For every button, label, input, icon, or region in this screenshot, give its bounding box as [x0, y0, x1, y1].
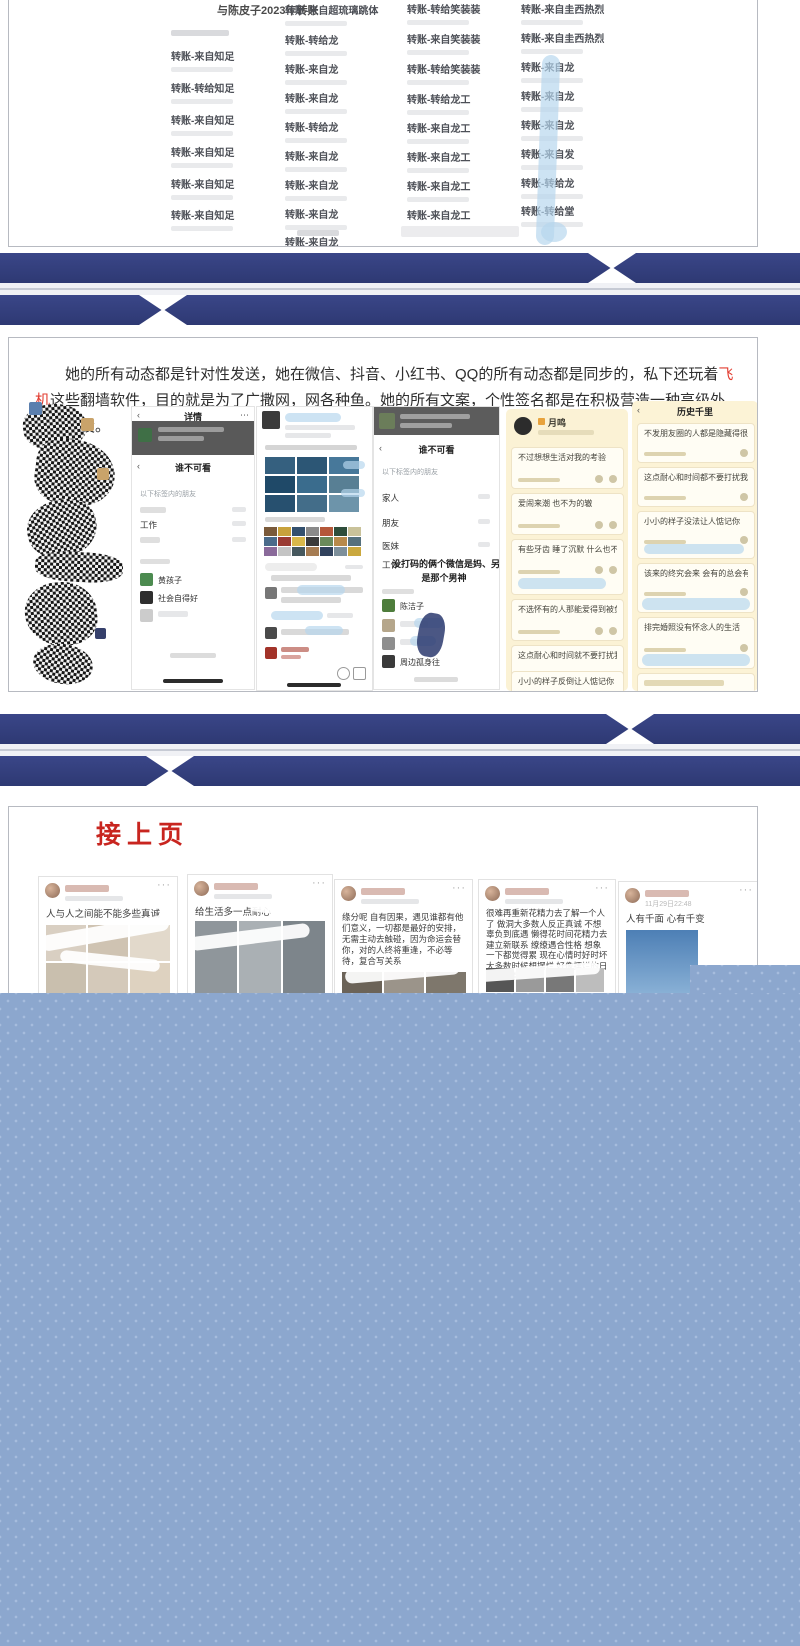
contact-avatar [382, 637, 395, 650]
transfer-time-blur [285, 21, 347, 26]
transfer-record: 转账-来自龙 [285, 210, 415, 230]
photo-cell [278, 527, 291, 536]
transfer-record: 转账-来自知足 [171, 148, 301, 168]
transfer-record: 转账-来自龙 [285, 238, 415, 247]
post-date-blur [361, 899, 419, 904]
badge-icon [538, 418, 545, 425]
blur-bar [478, 519, 490, 524]
photo-cell [348, 537, 361, 546]
photo-cell [297, 495, 327, 512]
wechat-privacy-screenshot: ‹ 谁不可看 以下标签内的朋友 家人 朋友 医妹 工作 没打码的俩个微信是妈、另… [373, 406, 500, 690]
blur-bar [327, 613, 353, 618]
censor-scribble [644, 544, 744, 554]
transfer-label: 转账-来自知足 [171, 211, 301, 222]
photo-cell [334, 547, 347, 556]
post-text: 不发朋友圈的人都是隐藏得很深的 [644, 429, 748, 439]
profile-avatar [514, 417, 532, 435]
blur-bar [644, 680, 724, 686]
contact-name: 社会自得好 [158, 593, 198, 604]
wechat-detail-screenshot: ‹ 详情 ⋯ ‹ 谁不可看 以下标签内的朋友 工作 黄孩子 社会自得好 [131, 406, 255, 690]
poster-avatar [625, 888, 640, 903]
blur-bar [297, 230, 339, 236]
home-indicator [163, 679, 223, 683]
censor-pattern-blob [30, 640, 96, 689]
tag-row-label: 家人 [382, 492, 399, 504]
post-text: 这点耐心和时间都不要打扰我了 [644, 473, 748, 483]
transfer-record: 转账-转给笑装装 [407, 65, 537, 85]
poster-name-blur [645, 890, 689, 897]
blur-bar [345, 565, 363, 569]
poster-name-blur [361, 888, 405, 895]
transfer-label: 转账-来自龙 [285, 65, 415, 76]
transfer-label: 转账-来自龙工 [407, 124, 537, 135]
post-date-blur [505, 899, 563, 904]
qq-post: 排完婚照没有怀念人的生活 [637, 617, 755, 669]
photo-cell [334, 537, 347, 546]
transfer-record: 转账-来自知足 [171, 52, 301, 72]
transfer-time-blur [171, 226, 233, 231]
blur-bar [414, 677, 458, 682]
post-time-blur [518, 524, 560, 528]
transfer-label: 转账-来自圭西热烈 [521, 34, 651, 45]
transfer-time-blur [285, 109, 347, 114]
poster-avatar [485, 886, 500, 901]
evidence-panel: 她的所有动态都是针对性发送，她在微信、抖音、小红书、QQ的所有动态都是同步的，私… [8, 337, 758, 692]
qq-post: 该来的终究会来 会有的总会有的 [637, 563, 755, 613]
post-banner [374, 407, 499, 435]
privacy-title: 谁不可看 [132, 461, 254, 474]
contact-avatar [382, 655, 395, 668]
transfer-label: 转账-转给笑装装 [407, 5, 537, 16]
censor-pattern-blob [34, 550, 123, 585]
contact-avatar [382, 599, 395, 612]
photo-cell [278, 537, 291, 546]
blur-bar [281, 655, 301, 659]
post-time-blur [644, 592, 686, 596]
qq-profile-screenshot: 月鸣 不过想想生活对我的考验 爱闹来潮 也不为的辙 有些牙齿 睡了沉默 什么也不… [506, 409, 628, 691]
chat-bubble [265, 563, 317, 571]
post-text: 不过想想生活对我的考验 [518, 453, 617, 463]
divider-notch [588, 267, 636, 283]
continue-from-previous-label: 接上页 [96, 815, 189, 851]
transfer-time-blur [285, 167, 347, 172]
censor-scribble [285, 413, 341, 422]
transfer-label: 转账-来自龙 [285, 210, 415, 221]
home-indicator [287, 683, 341, 687]
photo-cell [265, 457, 295, 474]
qq-post: 小小的样子反倒让人惦记你 [511, 671, 624, 691]
contact-name: 陈洁子 [400, 601, 424, 612]
qq-post: 不过想想生活对我的考验 [511, 447, 624, 489]
avatar-thumbnail [81, 418, 94, 431]
post-time-blur [518, 630, 560, 634]
transfer-time-blur [407, 20, 469, 25]
transfer-label: 转账-转给龙 [285, 123, 415, 134]
photo-cell [292, 537, 305, 546]
profile-avatar [262, 411, 280, 429]
blur-bar [140, 537, 160, 543]
censor-scribble [518, 578, 606, 589]
transfer-time-blur [285, 138, 347, 143]
transfer-time-blur [171, 67, 233, 72]
censor-scribble [305, 626, 343, 635]
censor-scribble [642, 654, 750, 666]
blur-bar [232, 507, 246, 512]
screenshot-page: 与陈皮子2023年转账 转账-来自知足 转账-转给知足 转账-来自知足 转账-来… [0, 0, 800, 1646]
transfer-label: 转账-来自笑装装 [407, 35, 537, 46]
contact-avatar [140, 591, 153, 604]
post-banner [132, 421, 254, 455]
post-text: 不选怀有的人那能爱得到被负 [518, 605, 617, 615]
transfer-record: 转账-转给龙 [285, 36, 415, 56]
post-text: 缘分呢 自有因果，遇见谁都有他们意义，一切都是最好的安排，无需主动去触碰，因为命… [342, 912, 465, 967]
tag-row-label: 医妹 [382, 540, 399, 552]
divider-line [0, 749, 800, 751]
transfer-record: 转账-来自龙 [285, 94, 415, 114]
transfer-time-blur [285, 196, 347, 201]
transfer-label: 转账-来自龙 [285, 94, 415, 105]
transfer-label: 转账-来自龙 [521, 63, 651, 74]
profile-name: 月鸣 [548, 416, 566, 429]
tag-row-label: 朋友 [382, 517, 399, 529]
transfer-record: 转账-来自圭西热烈 [521, 5, 651, 25]
photo-cell [334, 527, 347, 536]
divider-bar [0, 756, 800, 786]
post-date: 11月29日22:48 [645, 899, 692, 909]
section-label: 以下标签内的朋友 [140, 489, 196, 499]
blur-bar [281, 647, 309, 652]
transfer-time-blur [171, 163, 233, 168]
poster-name-blur [214, 883, 258, 890]
annotation-text: 是那个男神 [392, 571, 496, 584]
like-icon [740, 449, 748, 457]
blur-bar [271, 575, 351, 581]
censor-scribble [343, 461, 365, 469]
transfer-record: 转账-来自龙 [285, 65, 415, 85]
poster-avatar [45, 883, 60, 898]
photo-cell [348, 527, 361, 536]
photo-cell [320, 547, 333, 556]
more-menu-icon: ··· [157, 879, 171, 891]
transfer-label: 转账-转给龙工 [407, 95, 537, 106]
transfer-record: 转账-来自知足 [171, 180, 301, 200]
qq-post: 不发朋友圈的人都是隐藏得很深的 [637, 423, 755, 463]
qq-history-screenshot: ‹ 历史千里 不发朋友圈的人都是隐藏得很深的 这点耐心和时间都不要打扰我了 小小… [632, 401, 758, 691]
chat-avatar [265, 627, 277, 639]
poster-avatar [341, 886, 356, 901]
paragraph-text: 她的所有动态都是针对性发送，她在微信、抖音、小红书、QQ的所有动态都是同步的，私… [65, 366, 718, 383]
like-icon [595, 521, 603, 529]
transfer-record: 转账-来自龙工 [407, 153, 537, 173]
transfer-label: 转账-来自圭西热烈 [521, 5, 651, 16]
transfer-time-blur [171, 131, 233, 136]
photo-cell [297, 476, 327, 493]
blur-bar [265, 445, 357, 450]
transfer-time-blur [285, 80, 347, 85]
photo-cell [278, 547, 291, 556]
more-menu-icon: ··· [739, 884, 753, 896]
transfer-time-blur [285, 51, 347, 56]
photo-cell [306, 527, 319, 536]
post-date-blur [65, 896, 123, 901]
blue-overlay-block [0, 993, 800, 1646]
censor-scribble [297, 585, 345, 595]
photo-cell [265, 495, 295, 512]
message-icon [353, 667, 366, 680]
blur-bar [158, 436, 204, 441]
transfer-time-blur [521, 49, 583, 54]
blur-bar [285, 425, 355, 430]
transfer-time-blur [407, 80, 469, 85]
like-icon [595, 475, 603, 483]
blur-bar [158, 427, 224, 432]
photo-cell [297, 457, 327, 474]
more-menu-icon: ··· [312, 877, 326, 889]
post-text: 这点耐心和时间就不要打扰我了 [518, 651, 617, 661]
post-text: 排完婚照没有怀念人的生活 [644, 623, 748, 633]
transfer-time-blur [407, 110, 469, 115]
blur-bar [265, 517, 325, 522]
divider-notch [139, 309, 187, 325]
avatar-thumbnail [29, 402, 42, 415]
transfer-label: 转账-来自龙工 [407, 182, 537, 193]
post-time-blur [644, 496, 686, 500]
photo-cell [264, 537, 277, 546]
post-time-blur [644, 452, 686, 456]
blur-bar [170, 653, 216, 658]
transfer-label: 转账-来自知足 [171, 116, 301, 127]
contact-avatar [140, 573, 153, 586]
transfer-record: 转账-转给笑装装 [407, 5, 537, 25]
transfer-label: 转账-来自知足 [171, 148, 301, 159]
transfer-label: 转账-转给笑装装 [407, 65, 537, 76]
comment-icon [609, 475, 617, 483]
screen-title: 历史千里 [632, 405, 758, 418]
transfer-record: 转账-转给龙工 [407, 95, 537, 115]
blur-bar [285, 433, 331, 438]
transfer-record: 转账-来自超琉璃跳体 [285, 6, 415, 26]
transfer-time-blur [407, 168, 469, 173]
photo-cell [292, 527, 305, 536]
chat-avatar [265, 647, 277, 659]
transfer-label: 转账-来自超琉璃跳体 [285, 6, 415, 17]
comment-icon [609, 521, 617, 529]
transfer-time-blur [407, 139, 469, 144]
transfer-time-blur [407, 197, 469, 202]
blur-bar [281, 597, 341, 603]
contact-avatar [140, 609, 153, 622]
blur-bar [478, 542, 490, 547]
transfer-label: 转账-来自知足 [171, 180, 301, 191]
qq-post [637, 673, 755, 691]
like-icon [595, 566, 603, 574]
divider-notch [606, 728, 654, 744]
tag-row-label: 工作 [140, 519, 157, 531]
qq-post: 这点耐心和时间都不要打扰我了 [637, 467, 755, 507]
transfer-label: 转账-来自龙 [285, 181, 415, 192]
transfer-record: 转账-来自龙工 [407, 182, 537, 202]
blur-bar [478, 494, 490, 499]
more-icon: ⋯ [240, 410, 249, 421]
transfer-record: 转账-来自笑装装 [407, 35, 537, 55]
divider-line [0, 288, 800, 290]
blur-bar [401, 226, 519, 237]
avatar-thumbnail [97, 468, 109, 480]
post-time-blur [644, 648, 686, 652]
qq-post: 小小的样子没法让人惦记你 [637, 511, 755, 559]
add-icon [337, 667, 350, 680]
poster-name-blur [505, 888, 549, 895]
transfer-record: 转账-转给知足 [171, 84, 301, 104]
section-label: 以下标签内的朋友 [382, 467, 438, 477]
photo-cell [320, 527, 333, 536]
poster-name-blur [65, 885, 109, 892]
photo-cell [306, 537, 319, 546]
post-date-blur [214, 894, 272, 899]
qq-post: 不选怀有的人那能爱得到被负 [511, 599, 624, 641]
photo-cell [265, 476, 295, 493]
transfer-records-panel: 与陈皮子2023年转账 转账-来自知足 转账-转给知足 转账-来自知足 转账-来… [8, 0, 758, 247]
like-icon [740, 588, 748, 596]
blur-bar [140, 507, 166, 513]
transfer-record: 转账-来自圭西热烈 [521, 34, 651, 54]
banner-thumbnail [138, 428, 152, 442]
photo-cell [306, 547, 319, 556]
divider-notch [146, 770, 194, 786]
annotation-text: 没打码的俩个微信是妈、另外俩个 [392, 557, 496, 570]
more-menu-icon: ··· [595, 882, 609, 894]
post-time-blur [518, 570, 560, 574]
photo-cell [292, 547, 305, 556]
censor-scribble [341, 489, 365, 497]
photo-cell [348, 547, 361, 556]
transfer-record: 转账-来自龙工 [407, 124, 537, 144]
post-text: 人有千面 心有千变 [626, 914, 752, 926]
blur-bar [232, 521, 246, 526]
wechat-moments-screenshot [256, 406, 373, 691]
more-menu-icon: ··· [452, 882, 466, 894]
divider-bar [0, 253, 800, 283]
transfer-label: 转账-来自龙工 [407, 211, 537, 222]
post-text: 有些牙齿 睡了沉默 什么也不想说 [518, 545, 617, 555]
photo-cell [264, 547, 277, 556]
transfer-time-blur [521, 20, 583, 25]
like-icon [740, 493, 748, 501]
post-text: 该来的终究会来 会有的总会有的 [644, 569, 748, 579]
post-text: 小小的样子没法让人惦记你 [644, 517, 748, 527]
poster-avatar [194, 881, 209, 896]
blur-bar [400, 423, 452, 428]
divider-bar [0, 714, 800, 744]
banner-thumbnail [379, 413, 395, 429]
transfer-record: 转账-来自知足 [171, 211, 301, 231]
avatar-thumbnail [95, 628, 106, 639]
transfer-label: 转账-来自知足 [171, 52, 301, 63]
comment-icon [609, 566, 617, 574]
transfer-record: 转账-转给龙 [285, 123, 415, 143]
post-text: 爱闹来潮 也不为的辙 [518, 499, 617, 509]
transfer-label: 转账-转给知足 [171, 84, 301, 95]
transfer-time-blur [171, 195, 233, 200]
blur-bar [171, 30, 229, 36]
post-text: 小小的样子反倒让人惦记你 [518, 677, 617, 687]
transfer-time-blur [171, 99, 233, 104]
censor-scribble [541, 222, 567, 242]
blur-bar [158, 611, 188, 617]
transfer-record: 转账-来自知足 [171, 116, 301, 136]
contact-name: 周边孤身往 [400, 657, 440, 668]
contact-name: 黄孩子 [158, 575, 182, 586]
censor-scribble [642, 598, 750, 610]
blue-overlay-block [690, 965, 800, 995]
transfer-label: 转账-转给龙 [285, 36, 415, 47]
censor-pattern-blob [22, 578, 100, 649]
divider-bar [0, 295, 800, 325]
like-icon [740, 536, 748, 544]
post-time-blur [518, 478, 560, 482]
transfer-time-blur [407, 50, 469, 55]
censor-scribble [271, 611, 323, 620]
chat-avatar [265, 587, 277, 599]
blur-bar [232, 537, 246, 542]
comment-icon [609, 627, 617, 635]
transfer-label: 转账-来自龙 [285, 238, 415, 247]
blur-bar [538, 430, 594, 435]
transfer-record: 转账-来自龙 [285, 152, 415, 172]
photo-cell [320, 537, 333, 546]
blur-bar [382, 589, 414, 594]
photo-cell [329, 495, 359, 512]
like-icon [595, 627, 603, 635]
transfer-label: 转账-来自龙 [285, 152, 415, 163]
transfer-record: 转账-来自龙 [285, 181, 415, 201]
like-icon [740, 644, 748, 652]
contact-avatar [382, 619, 395, 632]
qq-post: 有些牙齿 睡了沉默 什么也不想说 [511, 539, 624, 595]
qq-post: 爱闹来潮 也不为的辙 [511, 493, 624, 535]
blur-bar [400, 414, 470, 419]
privacy-title: 谁不可看 [374, 443, 499, 456]
transfer-label: 转账-来自龙工 [407, 153, 537, 164]
photo-cell [264, 527, 277, 536]
blur-bar [140, 559, 170, 564]
